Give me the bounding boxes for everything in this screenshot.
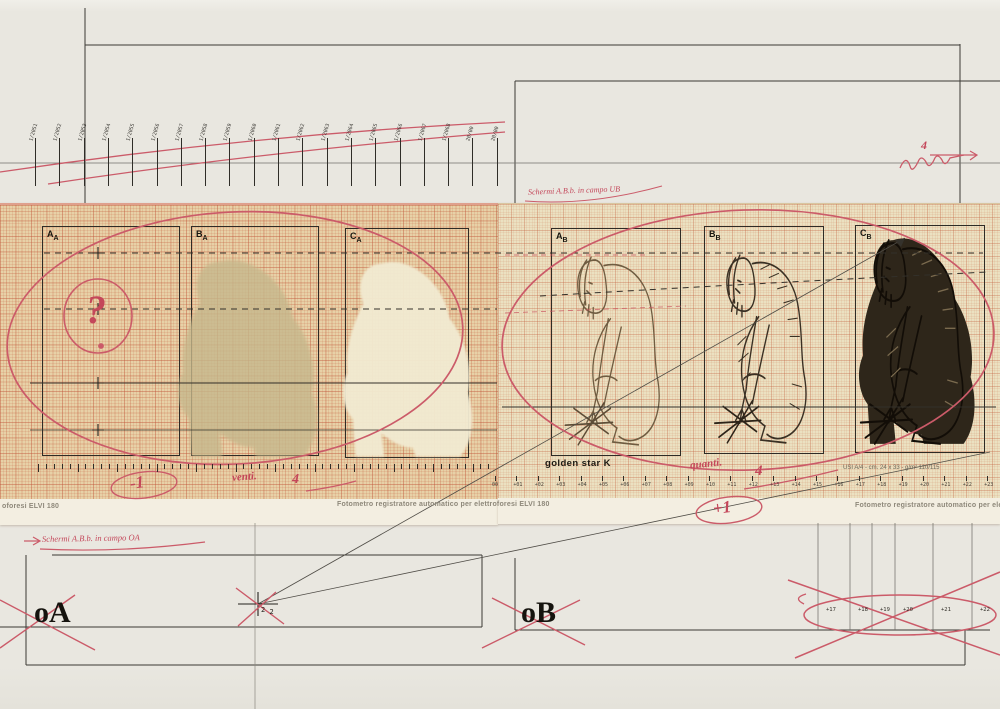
ruler-tick bbox=[433, 464, 434, 472]
top-tick-label: 1/2062 bbox=[296, 123, 307, 142]
ruler-tick bbox=[457, 464, 458, 469]
hominid-figure-detailed bbox=[698, 244, 834, 454]
bottom-scale-label: +20 bbox=[903, 607, 913, 613]
ruler-tick bbox=[488, 464, 489, 469]
scale-label: +22 bbox=[963, 482, 972, 488]
ruler-tick bbox=[346, 464, 347, 469]
ruler-tick bbox=[78, 464, 79, 472]
label-oB: oB bbox=[521, 596, 556, 630]
ruler-tick bbox=[243, 464, 244, 469]
scale-label: +07 bbox=[642, 482, 651, 488]
ghost-silhouette-cream bbox=[324, 252, 494, 468]
top-tick-label: 1/2068 bbox=[441, 123, 452, 142]
top-tick bbox=[327, 138, 328, 186]
scale-tick bbox=[816, 476, 817, 481]
scale-label: +04 bbox=[578, 482, 587, 488]
ruler-tick bbox=[338, 464, 339, 469]
scale-tick bbox=[987, 476, 988, 481]
bottom-scale-label: +17 bbox=[826, 607, 836, 613]
top-tick bbox=[400, 138, 401, 186]
ruler-tick bbox=[267, 464, 268, 469]
hominid-figure-outline bbox=[548, 246, 688, 456]
scale-tick bbox=[923, 476, 924, 481]
plus-one: +1 bbox=[712, 497, 732, 519]
panel-label-BA: BA bbox=[196, 229, 208, 242]
ruler-tick bbox=[259, 464, 260, 469]
top-tick bbox=[229, 138, 230, 186]
scale-tick bbox=[709, 476, 710, 481]
top-tick bbox=[84, 138, 85, 186]
scale-label: +21 bbox=[941, 482, 950, 488]
top-tick-label: 1/2060 bbox=[247, 123, 258, 142]
scale-tick bbox=[623, 476, 624, 481]
scale-label: 00 bbox=[492, 482, 498, 488]
ruler-tick bbox=[212, 464, 213, 469]
ruler-tick bbox=[354, 464, 355, 472]
ruler-tick bbox=[228, 464, 229, 469]
scale-label: +06 bbox=[620, 482, 629, 488]
top-tick-label: 1/2054 bbox=[101, 123, 112, 142]
scale-tick bbox=[581, 476, 582, 481]
bottom-scale-label: +22 bbox=[980, 607, 990, 613]
top-tick bbox=[278, 138, 279, 186]
cross-subscript: 2 2 bbox=[261, 606, 274, 614]
ruler-tick bbox=[425, 464, 426, 469]
question-mark: ? bbox=[86, 286, 106, 333]
scale-label: +20 bbox=[920, 482, 929, 488]
ruler-tick bbox=[330, 464, 331, 469]
note-campo-oa: Schermi A.B.b. in campo OA bbox=[42, 532, 140, 544]
scale-label: +23 bbox=[984, 482, 993, 488]
scribble-four: 4 bbox=[921, 138, 927, 153]
top-tick bbox=[205, 138, 206, 186]
ruler-tick bbox=[322, 464, 323, 469]
scale-label: +14 bbox=[792, 482, 801, 488]
scale-label: +15 bbox=[813, 482, 822, 488]
ruler-tick bbox=[480, 464, 481, 469]
ruler-tick bbox=[220, 464, 221, 469]
venti-note: venti. bbox=[232, 470, 258, 484]
scale-label: +12 bbox=[749, 482, 758, 488]
ruler-tick bbox=[370, 464, 371, 469]
ruler-tick bbox=[125, 464, 126, 469]
top-tick bbox=[35, 138, 36, 186]
top-tick-label: 1/2065 bbox=[368, 123, 379, 142]
scale-tick bbox=[645, 476, 646, 481]
top-tick bbox=[424, 138, 425, 186]
ruler-tick bbox=[394, 464, 395, 472]
ruler-tick bbox=[180, 464, 181, 469]
ruler-tick bbox=[62, 464, 63, 469]
top-tick-label: 1/2058 bbox=[198, 123, 209, 142]
top-tick bbox=[181, 138, 182, 186]
top-tick bbox=[108, 138, 109, 186]
top-tick-label: 1/2061 bbox=[271, 123, 282, 142]
hominid-figure-shaded bbox=[842, 228, 994, 456]
ruler-tick bbox=[109, 464, 110, 469]
ruler-tick bbox=[101, 464, 102, 469]
scale-label: +18 bbox=[877, 482, 886, 488]
ruler-tick bbox=[299, 464, 300, 469]
ruler-tick bbox=[307, 464, 308, 469]
top-tick bbox=[448, 138, 449, 186]
top-tick-label: 1/2059 bbox=[223, 123, 234, 142]
scale-tick bbox=[902, 476, 903, 481]
ruler-tick bbox=[172, 464, 173, 469]
ruler-tick bbox=[54, 464, 55, 469]
scale-label: +09 bbox=[685, 482, 694, 488]
scale-label: +08 bbox=[663, 482, 672, 488]
paper-spec: USI A/4 - cm. 24 x 33 - g/m² 110/115 bbox=[843, 465, 940, 471]
ruler-tick bbox=[46, 464, 47, 469]
ruler-tick bbox=[315, 464, 316, 472]
scale-tick bbox=[516, 476, 517, 481]
top-tick-label: 1/2067 bbox=[417, 123, 428, 142]
scale-label: +17 bbox=[856, 482, 865, 488]
ruler-tick bbox=[157, 464, 158, 472]
scale-tick bbox=[837, 476, 838, 481]
scale-tick bbox=[752, 476, 753, 481]
footer-caption-right-cut: Fotometro registratore automatico per el… bbox=[855, 502, 1000, 509]
bottom-scale-label: +19 bbox=[880, 607, 890, 613]
panel-label-BB: BB bbox=[709, 229, 721, 242]
ruler-tick bbox=[188, 464, 189, 469]
ruler-tick bbox=[465, 464, 466, 469]
scale-label: +02 bbox=[535, 482, 544, 488]
scale-label: +19 bbox=[899, 482, 908, 488]
scale-label: +11 bbox=[727, 482, 736, 488]
top-tick bbox=[254, 138, 255, 186]
ruler-tick bbox=[441, 464, 442, 469]
ruler-tick bbox=[164, 464, 165, 469]
ruler-tick bbox=[141, 464, 142, 469]
scale-label: +03 bbox=[556, 482, 565, 488]
minus-one: -1 bbox=[129, 472, 146, 494]
scale-tick bbox=[795, 476, 796, 481]
ruler-tick bbox=[378, 464, 379, 469]
scale-label: +16 bbox=[834, 482, 843, 488]
footer-caption-left-cut: oforesi ELVI 180 bbox=[2, 503, 59, 510]
scale-label: +13 bbox=[770, 482, 779, 488]
scale-tick bbox=[880, 476, 881, 481]
ruler-tick bbox=[291, 464, 292, 469]
scale-tick bbox=[944, 476, 945, 481]
ruler-tick bbox=[133, 464, 134, 469]
top-tick-label: 1/2063 bbox=[320, 123, 331, 142]
scale-tick bbox=[602, 476, 603, 481]
ruler-tick bbox=[362, 464, 363, 469]
scale-tick bbox=[538, 476, 539, 481]
scale-tick bbox=[859, 476, 860, 481]
ruler-tick bbox=[251, 464, 252, 469]
ruler-tick bbox=[85, 464, 86, 469]
scale-tick bbox=[773, 476, 774, 481]
scale-tick bbox=[688, 476, 689, 481]
ruler-tick bbox=[386, 464, 387, 469]
scale-tick bbox=[666, 476, 667, 481]
top-tick-label: 1/2052 bbox=[53, 123, 64, 142]
panel-label-AB: AB bbox=[556, 231, 568, 244]
top-tick bbox=[157, 138, 158, 186]
ruler-tick bbox=[38, 464, 39, 472]
scale-label: +05 bbox=[599, 482, 608, 488]
brand-golden-star: golden star K bbox=[545, 458, 611, 469]
bottom-scale-label: +21 bbox=[941, 607, 951, 613]
scale-label: +10 bbox=[706, 482, 715, 488]
top-tick-label: 1/2053 bbox=[77, 123, 88, 142]
ruler-tick bbox=[70, 464, 71, 469]
label-oA: oA bbox=[34, 596, 71, 630]
ruler-tick bbox=[401, 464, 402, 469]
top-tick-label: 1/2064 bbox=[344, 123, 355, 142]
ruler-tick bbox=[149, 464, 150, 469]
ruler-tick bbox=[196, 464, 197, 472]
ruler-tick bbox=[204, 464, 205, 469]
ruler-tick bbox=[93, 464, 94, 469]
top-tick-label: 1/2066 bbox=[393, 123, 404, 142]
bottom-scale-label: +18 bbox=[858, 607, 868, 613]
panel-label-AA: AA bbox=[47, 229, 59, 242]
panel-label-CA: CA bbox=[350, 231, 362, 244]
scale-tick bbox=[966, 476, 967, 481]
ruler-tick bbox=[417, 464, 418, 469]
scale-tick bbox=[559, 476, 560, 481]
quanti-four: 4 bbox=[755, 463, 763, 480]
top-tick-label: 1/2056 bbox=[150, 123, 161, 142]
ruler-tick bbox=[409, 464, 410, 469]
venti-four: 4 bbox=[292, 472, 299, 488]
ruler-tick bbox=[117, 464, 118, 472]
top-tick-label: 1/2057 bbox=[174, 123, 185, 142]
artwork-page: AA BA CA AB BB CB bbox=[0, 0, 1000, 709]
top-tick-label: 20/00 bbox=[466, 126, 476, 142]
note-campo-ub: Schermi A.B.b. in campo UB bbox=[528, 184, 620, 196]
ghost-silhouette-khaki bbox=[158, 250, 340, 468]
top-tick bbox=[302, 138, 303, 186]
scale-label: +01 bbox=[513, 482, 522, 488]
top-tick bbox=[472, 138, 473, 186]
ruler-tick bbox=[473, 464, 474, 472]
top-tick bbox=[59, 138, 60, 186]
top-tick-label: 1/2051 bbox=[28, 123, 39, 142]
ruler-tick bbox=[283, 464, 284, 469]
top-tick-label: 20/00 bbox=[490, 126, 500, 142]
top-tick-label: 1/2055 bbox=[125, 123, 136, 142]
top-tick bbox=[375, 138, 376, 186]
scale-tick bbox=[495, 476, 496, 481]
top-tick bbox=[497, 138, 498, 186]
ruler-tick bbox=[275, 464, 276, 472]
ruler-tick bbox=[449, 464, 450, 469]
top-tick bbox=[351, 138, 352, 186]
footer-caption-center: Fotometro registratore automatico per el… bbox=[337, 501, 550, 508]
scale-tick bbox=[730, 476, 731, 481]
top-tick bbox=[132, 138, 133, 186]
drop-lines-right bbox=[818, 523, 972, 630]
